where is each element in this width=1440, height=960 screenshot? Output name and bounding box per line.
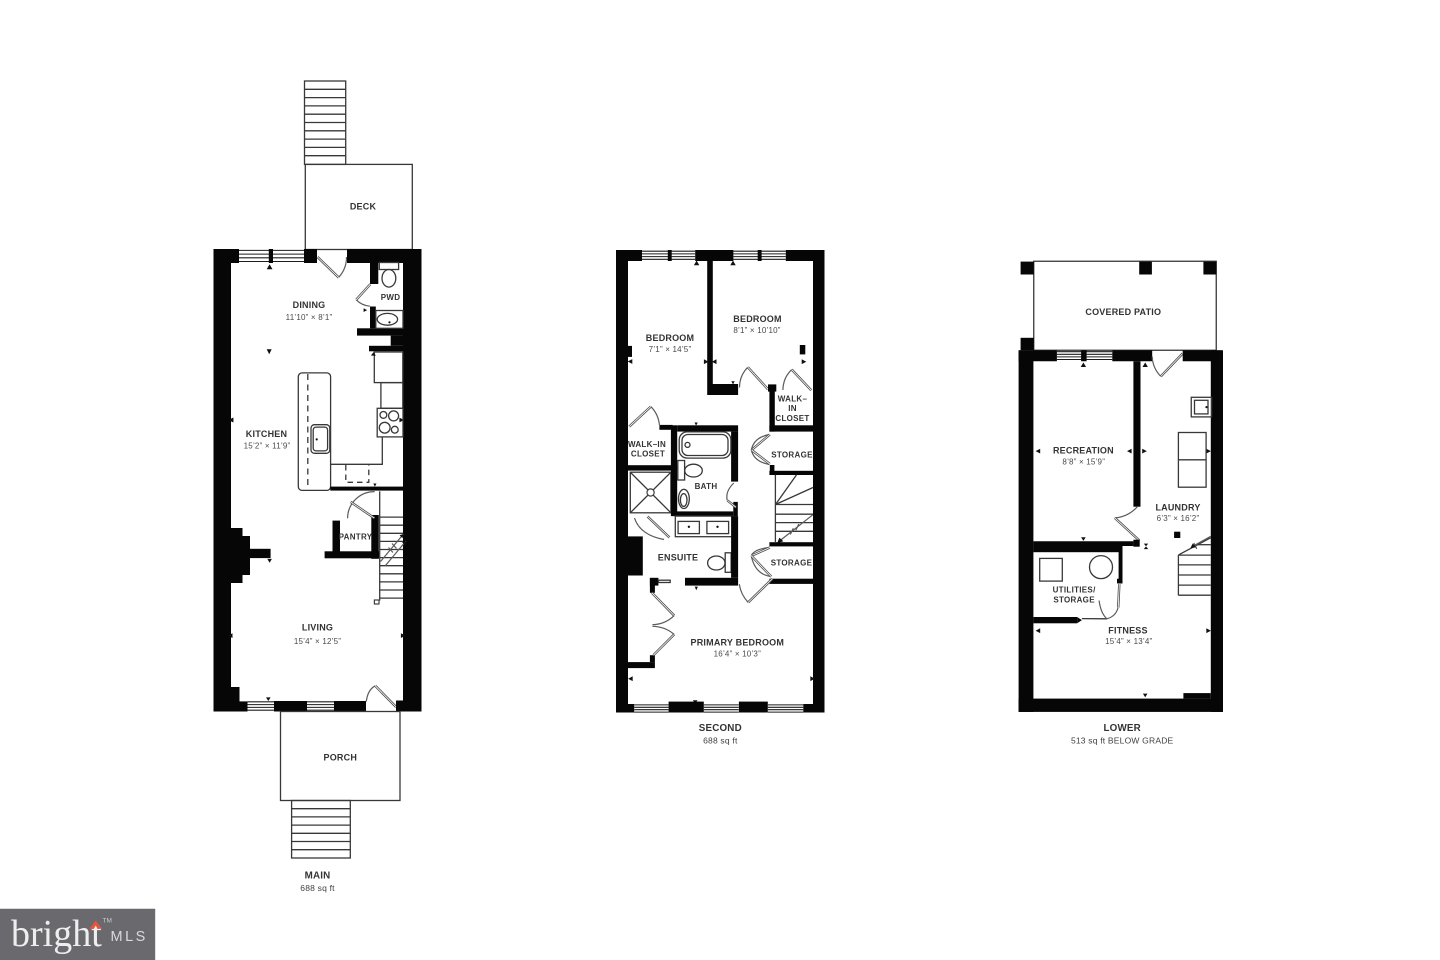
svg-text:CLOSET: CLOSET <box>775 414 809 423</box>
svg-text:7’1” × 14’5”: 7’1” × 14’5” <box>649 345 692 354</box>
svg-text:16’4” × 10’3”: 16’4” × 10’3” <box>714 650 761 659</box>
svg-text:COVERED PATIO: COVERED PATIO <box>1085 307 1161 317</box>
svg-text:11’10” × 8’1”: 11’10” × 8’1” <box>286 313 333 322</box>
svg-text:MLS: MLS <box>111 929 148 945</box>
svg-text:WALK–IN: WALK–IN <box>628 440 666 449</box>
svg-text:STORAGE: STORAGE <box>771 451 813 460</box>
svg-text:PORCH: PORCH <box>324 753 358 763</box>
svg-text:PWD: PWD <box>381 293 401 302</box>
svg-text:MAIN: MAIN <box>305 871 331 882</box>
svg-text:LAUNDRY: LAUNDRY <box>1155 503 1200 513</box>
svg-text:BEDROOM: BEDROOM <box>733 314 781 324</box>
svg-text:STORAGE: STORAGE <box>1053 596 1095 605</box>
svg-text:688 sq ft: 688 sq ft <box>703 736 738 746</box>
svg-text:BEDROOM: BEDROOM <box>646 333 694 343</box>
svg-text:6’3” × 16’2”: 6’3” × 16’2” <box>1157 514 1200 523</box>
svg-text:PRIMARY BEDROOM: PRIMARY BEDROOM <box>691 638 785 648</box>
svg-text:UTILITIES/: UTILITIES/ <box>1053 586 1096 595</box>
svg-text:FITNESS: FITNESS <box>1108 626 1147 636</box>
svg-text:DINING: DINING <box>293 300 326 310</box>
svg-text:8’8” × 15’9”: 8’8” × 15’9” <box>1062 458 1105 467</box>
svg-text:SECOND: SECOND <box>699 723 742 734</box>
svg-text:CLOSET: CLOSET <box>631 450 665 459</box>
svg-text:PANTRY: PANTRY <box>339 533 373 542</box>
svg-text:KITCHEN: KITCHEN <box>246 429 287 439</box>
svg-text:LOWER: LOWER <box>1103 723 1140 734</box>
svg-text:DECK: DECK <box>350 202 377 212</box>
svg-text:bright: bright <box>11 913 102 955</box>
svg-text:ENSUITE: ENSUITE <box>658 553 698 563</box>
svg-text:STORAGE: STORAGE <box>771 559 813 568</box>
svg-text:BATH: BATH <box>695 482 718 491</box>
svg-text:15’4” × 13’4”: 15’4” × 13’4” <box>1105 637 1152 646</box>
svg-text:IN: IN <box>788 404 797 413</box>
svg-text:513 sq ft BELOW GRADE: 513 sq ft BELOW GRADE <box>1071 736 1174 746</box>
svg-text:15’4” × 12’5”: 15’4” × 12’5” <box>294 637 341 646</box>
svg-text:TM: TM <box>103 918 112 925</box>
svg-text:8’1” × 10’10”: 8’1” × 10’10” <box>733 326 780 335</box>
svg-text:688 sq ft: 688 sq ft <box>300 883 335 893</box>
svg-text:WALK–: WALK– <box>778 395 808 404</box>
svg-text:RECREATION: RECREATION <box>1053 446 1114 456</box>
svg-text:15’2” × 11’9”: 15’2” × 11’9” <box>244 442 291 451</box>
svg-text:LIVING: LIVING <box>302 623 333 633</box>
